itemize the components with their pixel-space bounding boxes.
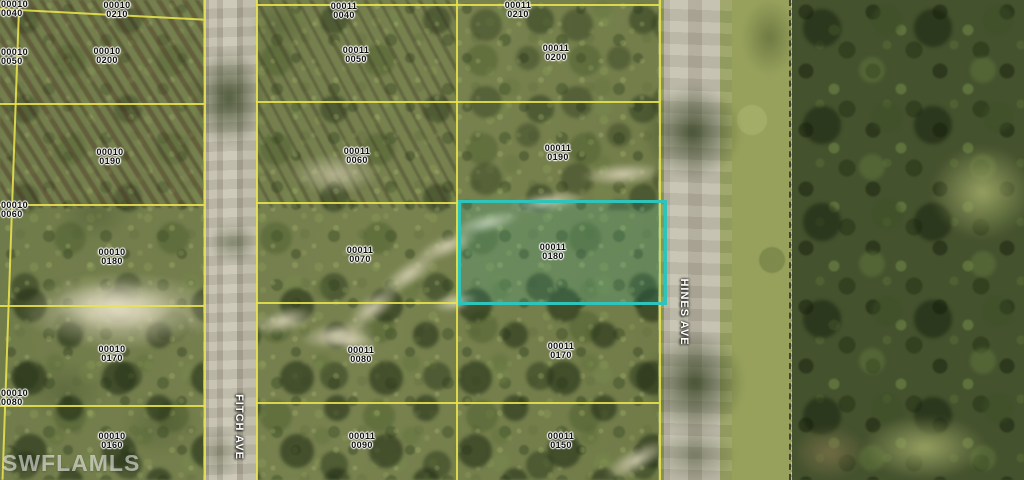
parcel-lot: 0050 xyxy=(1,57,28,66)
parcel-label: 00010 0040 xyxy=(1,0,28,18)
parcel-line-vertical xyxy=(256,0,258,480)
fence-line xyxy=(791,0,792,480)
parcel-lot: 0190 xyxy=(545,153,572,162)
parcel-label: 00010 0210 xyxy=(103,1,130,19)
parcel-label: 00011 0060 xyxy=(344,147,371,165)
parcel-line-horizontal xyxy=(0,405,204,407)
parcel-line-vertical xyxy=(204,0,206,480)
tree-canopy xyxy=(208,222,258,264)
parcel-lot: 0060 xyxy=(1,210,28,219)
parcel-lot: 0060 xyxy=(344,156,371,165)
parcel-lot: 0210 xyxy=(505,10,532,19)
fence-line xyxy=(789,0,791,480)
parcel-label: 00010 0180 xyxy=(98,248,125,266)
parcel-label: 00011 0200 xyxy=(543,44,570,62)
parcel-lot: 0080 xyxy=(348,355,375,364)
parcel-lot: 0040 xyxy=(331,11,358,20)
parcel-label: 00010 0190 xyxy=(96,148,123,166)
parcel-lot: 0090 xyxy=(349,441,376,450)
parcel-label: 00011 0080 xyxy=(348,346,375,364)
mls-watermark: SWFLAMLS xyxy=(2,450,140,477)
parcel-lot: 0080 xyxy=(1,398,28,407)
tree-canopy xyxy=(652,428,737,480)
parcel-lot: 0170 xyxy=(98,354,125,363)
parcel-lot: 0050 xyxy=(343,55,370,64)
highlighted-parcel-label: 00011 0180 xyxy=(540,243,567,261)
parcel-line-horizontal xyxy=(256,302,458,304)
parcel-line-horizontal xyxy=(0,103,204,105)
parcel-lot: 0070 xyxy=(347,255,374,264)
aerial-parcel-map: 00010 0040 00010 0050 00010 0060 00010 0… xyxy=(0,0,1024,480)
tree-canopy xyxy=(20,360,110,420)
parcel-line-horizontal xyxy=(256,202,458,204)
parcel-lot: 0200 xyxy=(93,56,120,65)
parcel-label: 00010 0050 xyxy=(1,48,28,66)
forest-texture xyxy=(792,0,1024,480)
dirt-patch xyxy=(792,425,867,480)
parcel-label: 00011 0150 xyxy=(548,432,575,450)
parcel-line-horizontal xyxy=(0,204,204,206)
street-label-hines-ave: HINES AVE xyxy=(678,278,690,345)
forest-texture xyxy=(792,0,1024,480)
parcel-label: 00011 0040 xyxy=(331,2,358,20)
parcel-label: 00010 0160 xyxy=(98,432,125,450)
tree-canopy xyxy=(60,190,130,240)
parcel-lot: 0200 xyxy=(543,53,570,62)
parcel-line-horizontal xyxy=(256,402,659,404)
parcel-line-vertical xyxy=(2,8,20,480)
parcel-label: 00010 0200 xyxy=(93,47,120,65)
parcel-line-horizontal xyxy=(0,305,204,307)
parcel-label: 00011 0050 xyxy=(343,46,370,64)
forest-clearing xyxy=(862,415,987,480)
parcel-lot: 0190 xyxy=(96,157,123,166)
parcel-lot: 0180 xyxy=(98,257,125,266)
parcel-label: 00011 0210 xyxy=(505,1,532,19)
parcel-label: 00011 0070 xyxy=(347,246,374,264)
parcel-lot: 0040 xyxy=(1,9,28,18)
parcel-line-horizontal xyxy=(256,101,659,103)
parcel-label: 00011 0170 xyxy=(548,342,575,360)
street-label-fitch-ave: FITCH AVE xyxy=(233,394,245,460)
parcel-label: 00010 0060 xyxy=(1,201,28,219)
parcel-label: 00010 0080 xyxy=(1,389,28,407)
parcel-lot: 0170 xyxy=(548,351,575,360)
dirt-trail xyxy=(579,160,665,188)
parcel-line-horizontal xyxy=(0,8,204,20)
parcel-label: 00011 0190 xyxy=(545,144,572,162)
tree-canopy xyxy=(250,0,310,50)
parcel-lot: 0180 xyxy=(540,252,567,261)
parcel-label: 00010 0170 xyxy=(98,345,125,363)
parcel-lot: 0150 xyxy=(548,441,575,450)
parcel-line-horizontal xyxy=(256,4,659,6)
parcel-lot: 0210 xyxy=(103,10,130,19)
tree-canopy xyxy=(642,85,742,180)
parcel-label: 00011 0090 xyxy=(349,432,376,450)
forest-clearing xyxy=(930,145,1024,240)
forest-area xyxy=(792,0,1024,480)
tree-canopy xyxy=(742,0,797,75)
parcel-lot: 0160 xyxy=(98,441,125,450)
